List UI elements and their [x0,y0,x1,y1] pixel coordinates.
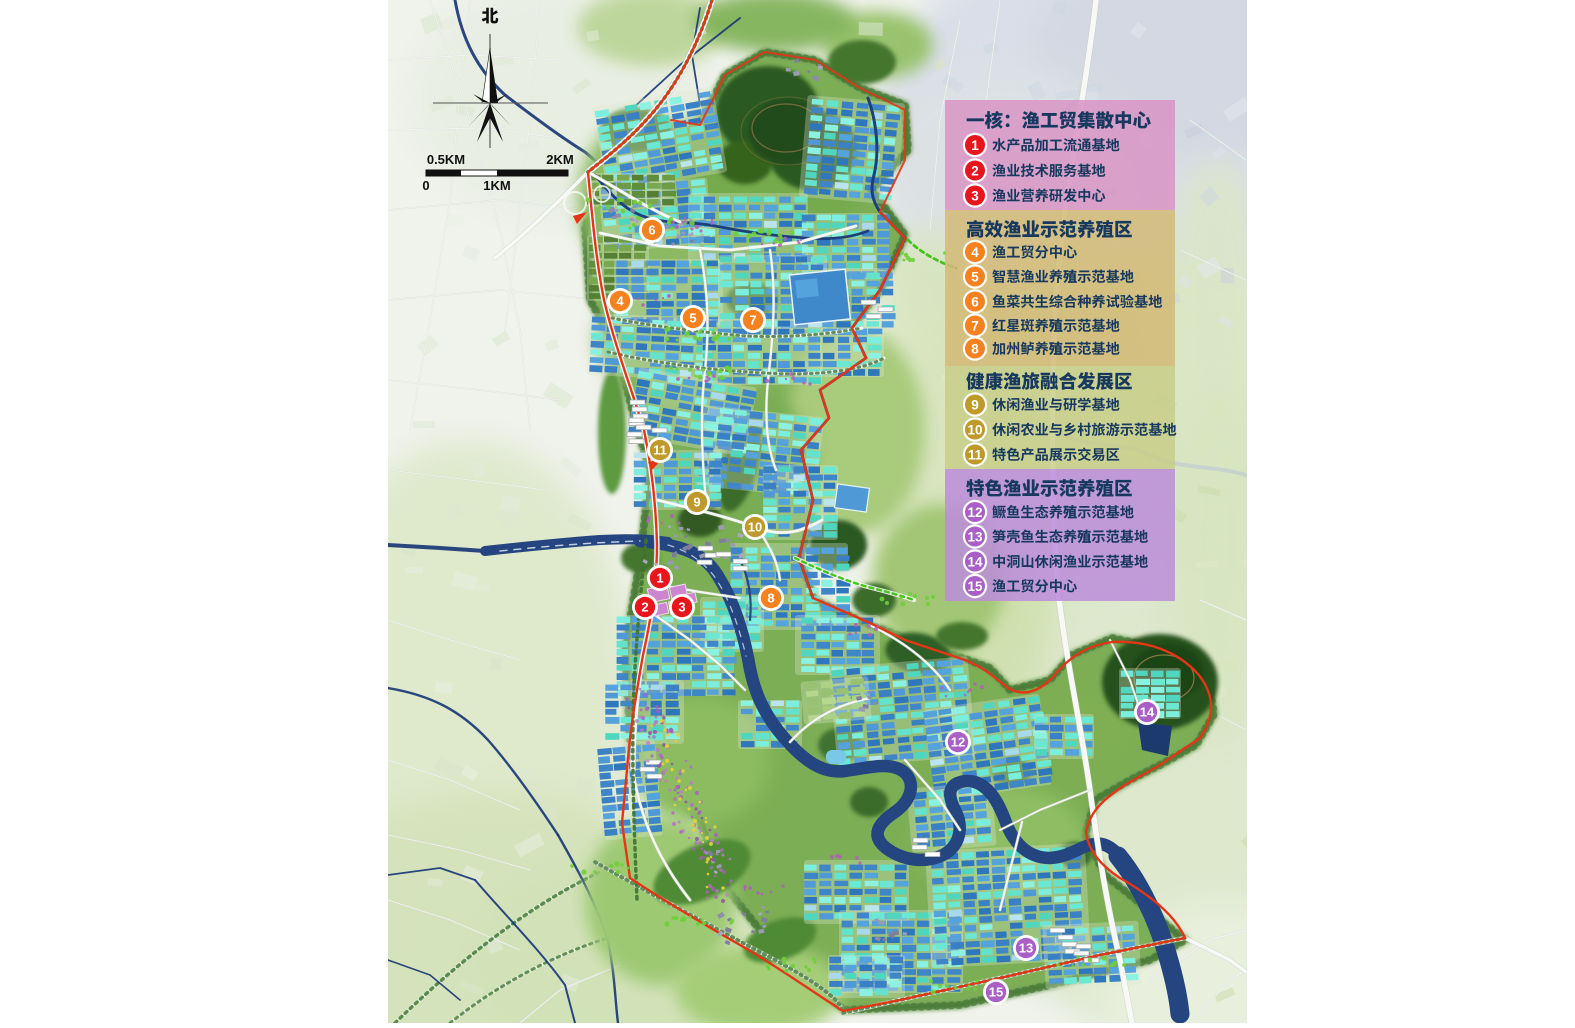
svg-text:14: 14 [967,555,983,570]
svg-text:7: 7 [971,319,979,334]
svg-text:2KM: 2KM [546,152,573,167]
svg-text:5: 5 [971,270,979,285]
svg-text:2: 2 [971,164,979,179]
svg-text:8: 8 [767,591,774,606]
svg-text:10: 10 [967,423,982,438]
svg-text:13: 13 [967,530,983,545]
svg-text:11: 11 [968,448,983,463]
svg-text:1: 1 [971,138,979,153]
svg-text:9: 9 [693,495,700,510]
svg-text:12: 12 [967,505,982,520]
svg-text:12: 12 [951,735,965,750]
svg-text:4: 4 [971,245,979,260]
svg-text:0.5KM: 0.5KM [427,152,465,167]
svg-text:3: 3 [678,600,685,615]
svg-text:4: 4 [616,294,624,309]
svg-text:1KM: 1KM [483,178,510,193]
svg-text:13: 13 [1019,941,1033,956]
svg-text:2: 2 [641,600,648,615]
svg-text:10: 10 [748,520,762,535]
svg-text:11: 11 [653,443,667,458]
svg-text:15: 15 [967,579,983,594]
svg-text:3: 3 [971,189,979,204]
svg-text:6: 6 [648,223,655,238]
svg-text:6: 6 [971,295,979,310]
svg-text:1: 1 [656,571,663,586]
svg-text:14: 14 [1140,705,1155,720]
svg-text:9: 9 [971,398,979,413]
svg-text:15: 15 [989,985,1003,1000]
svg-text:8: 8 [971,342,979,357]
svg-text:7: 7 [749,313,756,328]
svg-text:0: 0 [422,178,429,193]
svg-text:5: 5 [689,311,696,326]
